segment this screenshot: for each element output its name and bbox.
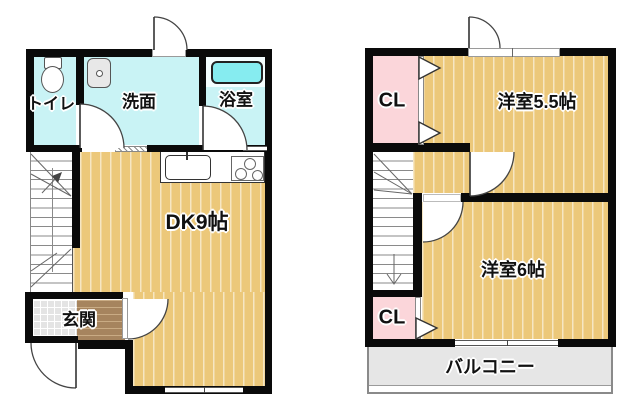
room55-floor	[423, 56, 608, 193]
door-window-2f-top	[468, 48, 560, 57]
stove-burner1-icon	[244, 158, 256, 170]
door-threshold-1f-top	[152, 49, 186, 57]
door-leaf-dk	[122, 298, 128, 339]
accordion-opening	[115, 146, 147, 152]
wall-stairs-right	[72, 145, 80, 248]
dk-floor-lower	[133, 292, 265, 386]
washbasin-drain-icon	[96, 70, 103, 77]
closet-bottom-track	[415, 297, 421, 339]
wall-1f-top-left	[26, 49, 152, 57]
kitchen-sink-icon	[165, 155, 211, 180]
stove-burner2-icon	[235, 168, 247, 180]
label-washroom: 洗面	[122, 88, 156, 113]
wall-toilet-right	[76, 49, 84, 105]
label-room6: 洋室6帖	[481, 256, 545, 282]
label-room55: 洋室5.5帖	[497, 88, 576, 114]
toilet-bowl-icon	[41, 66, 64, 93]
stairs-2f	[373, 152, 413, 290]
wall-2f-left	[365, 48, 373, 347]
door-arc-1f-top-icon	[154, 17, 187, 50]
door-arc-entrance-icon	[31, 343, 76, 388]
window-bath-dk	[243, 146, 267, 151]
wall-2f-center-vert	[413, 193, 422, 297]
stove-burner3-icon	[252, 170, 263, 181]
label-toilet: トイレ	[27, 90, 75, 114]
landing-floor	[413, 152, 423, 193]
label-dk: DK9帖	[165, 206, 228, 236]
window-2f-top-mullion	[512, 48, 513, 57]
stairs-1f	[30, 152, 72, 292]
wall-entrance-bottom	[25, 336, 78, 343]
wall-between-rooms	[461, 193, 616, 202]
window-1f-south-mullion	[204, 387, 205, 393]
wall-closet-bottom-top	[365, 290, 422, 297]
dk-floor-sliver	[73, 248, 80, 292]
label-bathroom: 浴室	[219, 86, 253, 111]
floorplan-canvas: トイレ 洗面 浴室 DK9帖 玄関 CL 洋室5.5帖 洋室6帖 CL バルコニ…	[0, 0, 640, 414]
wall-1f-right	[265, 49, 272, 394]
label-closet-top: CL	[379, 90, 406, 113]
door-arc-2f-top-icon	[469, 17, 500, 48]
bathtub-icon	[211, 61, 263, 84]
wall-wash-bath	[199, 49, 206, 106]
wall-entrance-top	[25, 292, 123, 299]
label-closet-bottom: CL	[379, 307, 406, 330]
wall-2f-top-left	[365, 48, 468, 56]
wall-2f-bottom-right	[558, 339, 616, 347]
stairs-1f-divider	[52, 168, 53, 272]
closet-top-track	[418, 56, 424, 145]
label-balcony: バルコニー	[445, 353, 535, 379]
wall-2f-bottom-left	[365, 339, 455, 347]
stairs-rail-line	[72, 248, 73, 292]
door-gap-room6	[423, 194, 461, 202]
label-entrance: 玄関	[62, 306, 96, 331]
window-2f-south-mullion	[507, 340, 508, 346]
